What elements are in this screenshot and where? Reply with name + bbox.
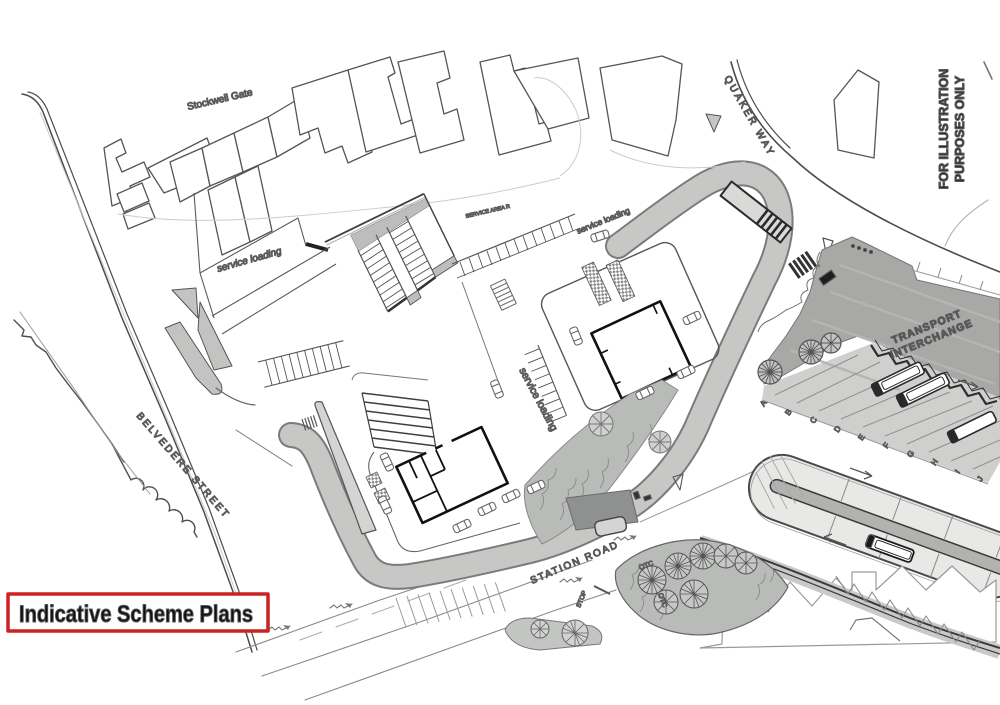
svg-text:FOR ILLUSTRATION: FOR ILLUSTRATION [937, 69, 951, 190]
svg-text:Indicative Scheme Plans: Indicative Scheme Plans [19, 601, 253, 628]
svg-text:PURPOSES ONLY: PURPOSES ONLY [953, 75, 967, 182]
